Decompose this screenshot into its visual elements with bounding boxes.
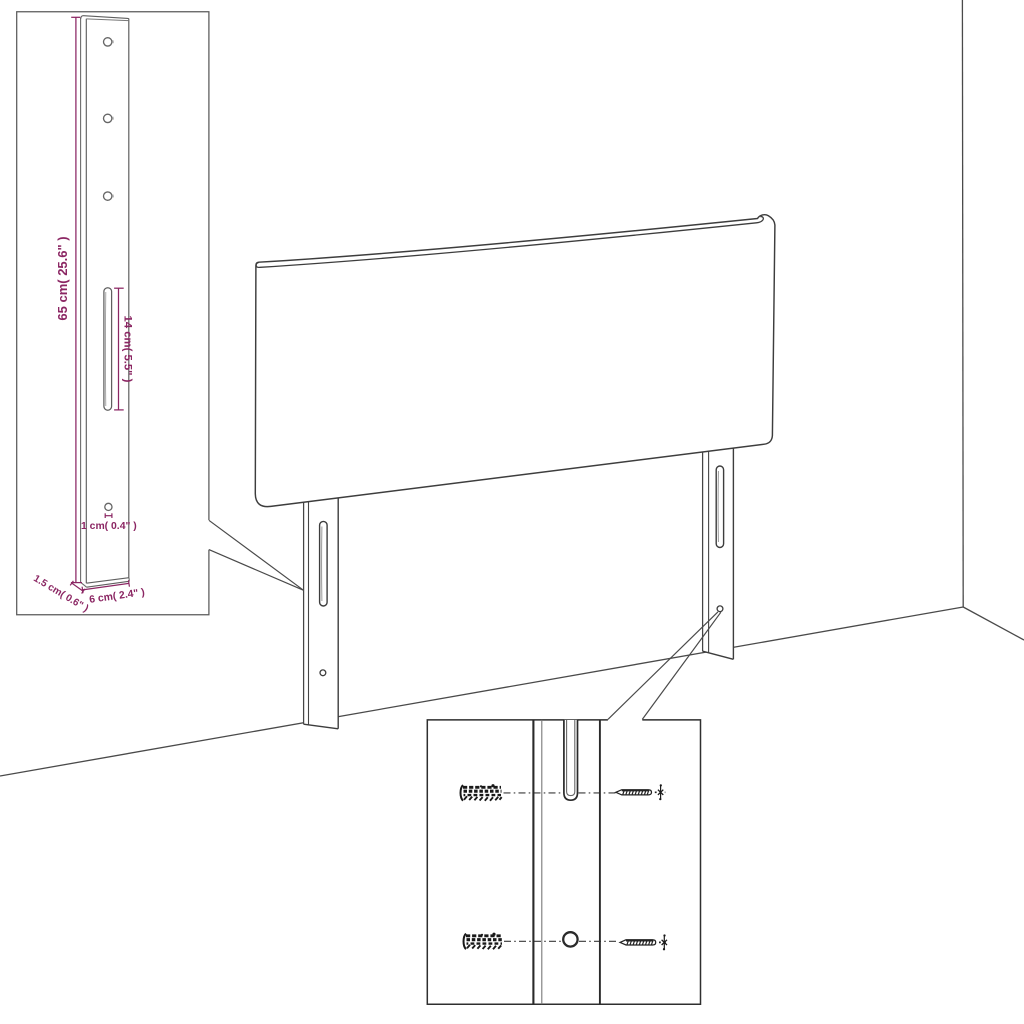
- svg-text:1 cm( 0.4" ): 1 cm( 0.4" ): [81, 521, 137, 532]
- svg-text:14 cm( 5.5" ): 14 cm( 5.5" ): [122, 316, 134, 383]
- svg-text:65 cm( 25.6" ): 65 cm( 25.6" ): [55, 236, 70, 320]
